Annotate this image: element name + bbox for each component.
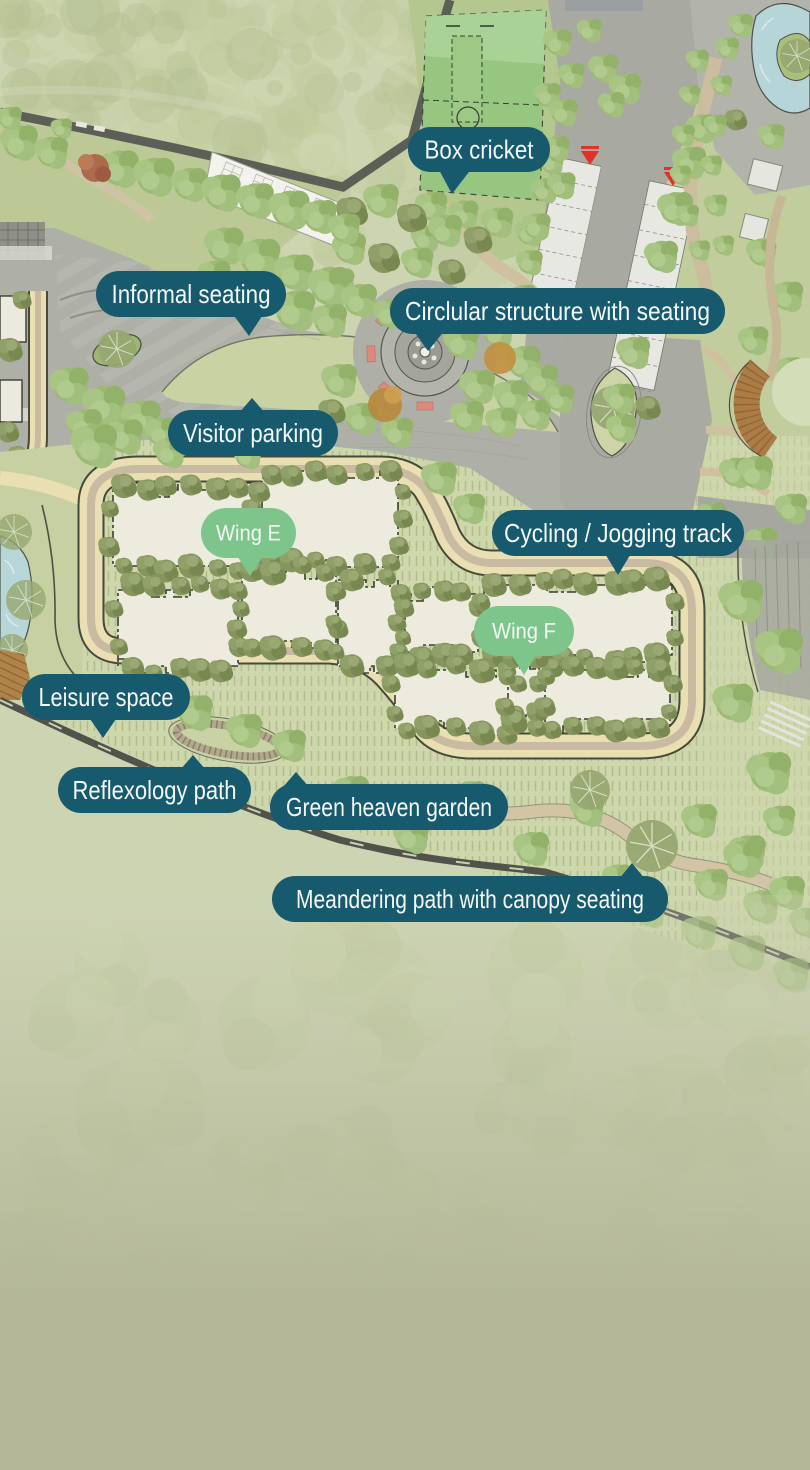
svg-text:Green heaven garden: Green heaven garden (286, 792, 492, 822)
svg-text:Box cricket: Box cricket (425, 135, 535, 165)
svg-text:Wing F: Wing F (492, 619, 556, 644)
svg-text:Reflexology path: Reflexology path (73, 775, 237, 805)
svg-text:Meandering path with canopy se: Meandering path with canopy seating (296, 884, 644, 914)
svg-text:Visitor parking: Visitor parking (183, 418, 323, 448)
svg-text:Leisure space: Leisure space (39, 682, 174, 712)
svg-text:Informal seating: Informal seating (112, 279, 271, 309)
svg-text:Wing E: Wing E (216, 521, 281, 546)
svg-text:Circlular structure with seati: Circlular structure with seating (405, 296, 710, 326)
svg-text:Cycling / Jogging track: Cycling / Jogging track (504, 518, 733, 548)
